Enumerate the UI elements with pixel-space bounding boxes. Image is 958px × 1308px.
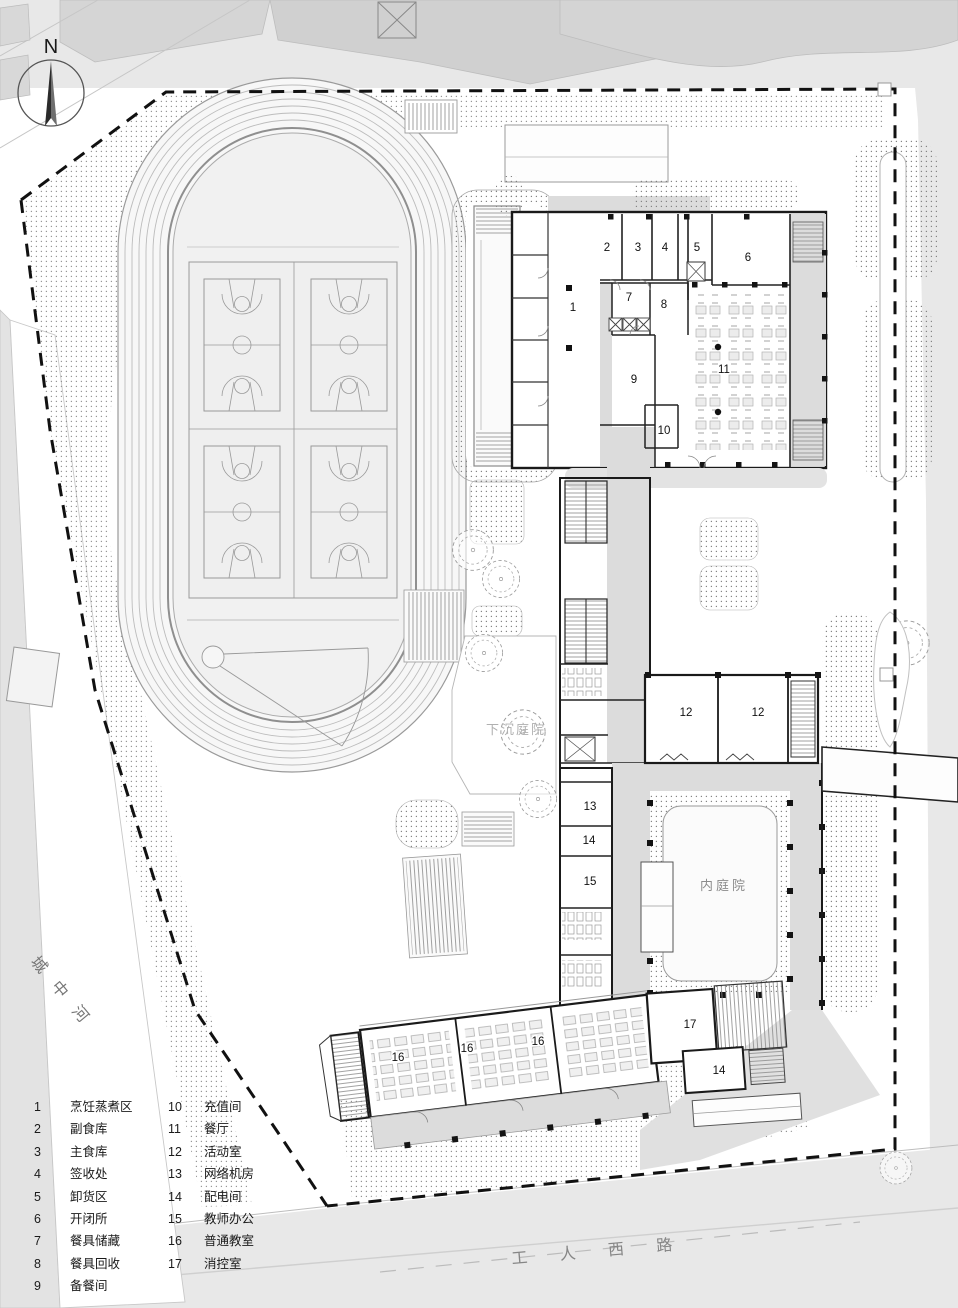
- room-label-3: 3: [635, 242, 641, 254]
- legend-item: 16普通教室: [168, 1230, 254, 1252]
- legend-num: 7: [34, 1230, 70, 1252]
- legend-label: 备餐间: [70, 1275, 108, 1297]
- legend-label: 充值间: [204, 1096, 242, 1118]
- room-label-16: 16: [532, 1036, 545, 1048]
- legend-num: 6: [34, 1208, 70, 1230]
- legend-num: 14: [168, 1186, 204, 1208]
- legend-label: 餐厅: [204, 1118, 229, 1140]
- legend-item: 6开闭所: [34, 1208, 133, 1230]
- legend-item: 17消控室: [168, 1253, 254, 1275]
- tree-icon: [482, 560, 519, 597]
- legend-label: 主食库: [70, 1141, 108, 1163]
- legend-num: 5: [34, 1186, 70, 1208]
- room-label-2: 2: [604, 242, 610, 254]
- legend-item: 11餐厅: [168, 1118, 254, 1140]
- room-label-6: 6: [745, 252, 751, 264]
- room-label-5: 5: [694, 242, 700, 254]
- room-label-1: 1: [570, 302, 576, 314]
- legend-label: 消控室: [204, 1253, 242, 1275]
- room-label-4: 4: [662, 242, 669, 254]
- legend-item: 12活动室: [168, 1141, 254, 1163]
- legend-label: 教师办公: [204, 1208, 254, 1230]
- legend-item: 13网络机房: [168, 1163, 254, 1185]
- legend-item: 8餐具回收: [34, 1253, 133, 1275]
- legend-num: 13: [168, 1163, 204, 1185]
- legend-num: 16: [168, 1230, 204, 1252]
- legend-item: 2副食库: [34, 1118, 133, 1140]
- legend-label: 普通教室: [204, 1230, 254, 1252]
- tree-icon: [880, 1152, 912, 1184]
- site-plan-drawing: N 1 2 3 4 5 6 7 8 9 10 11 12 12 13 14 15…: [0, 0, 958, 1308]
- legend-item: 9备餐间: [34, 1275, 133, 1297]
- sunken-courtyard: [452, 530, 557, 818]
- room-label-15: 15: [584, 876, 597, 888]
- legend-item: 14配电间: [168, 1186, 254, 1208]
- inner-courtyard-label: 内庭院: [700, 878, 748, 893]
- room-label-12: 12: [752, 707, 765, 719]
- legend-num: 11: [168, 1118, 204, 1140]
- legend-num: 1: [34, 1096, 70, 1118]
- room-label-10: 10: [658, 425, 671, 437]
- legend-label: 开闭所: [70, 1208, 108, 1230]
- room-label-7: 7: [626, 292, 632, 304]
- legend-num: 8: [34, 1253, 70, 1275]
- legend-label: 副食库: [70, 1118, 108, 1140]
- room-label-13: 13: [584, 801, 597, 813]
- legend-item: 3主食库: [34, 1141, 133, 1163]
- room-label-11: 11: [718, 364, 730, 376]
- legend-item: 4签收处: [34, 1163, 133, 1185]
- legend-label: 烹饪蒸煮区: [70, 1096, 133, 1118]
- room-label-16: 16: [461, 1043, 474, 1055]
- legend-item: 1烹饪蒸煮区: [34, 1096, 133, 1118]
- north-label: N: [44, 36, 58, 58]
- legend-label: 活动室: [204, 1141, 242, 1163]
- legend-label: 餐具储藏: [70, 1230, 120, 1252]
- room-label-14: 14: [713, 1065, 726, 1077]
- legend-num: 12: [168, 1141, 204, 1163]
- legend-label: 卸货区: [70, 1186, 108, 1208]
- legend-label: 网络机房: [204, 1163, 254, 1185]
- legend-item: 15教师办公: [168, 1208, 254, 1230]
- legend-column-1: 1烹饪蒸煮区 2副食库 3主食库 4签收处 5卸货区 6开闭所 7餐具储藏 8餐…: [34, 1096, 133, 1298]
- legend-num: 2: [34, 1118, 70, 1140]
- tree-icon: [453, 530, 494, 571]
- legend-num: 4: [34, 1163, 70, 1185]
- tree-icon: [519, 780, 556, 817]
- room-label-16: 16: [392, 1052, 405, 1064]
- upper-block: [512, 212, 828, 488]
- legend-num: 17: [168, 1253, 204, 1275]
- legend-label: 签收处: [70, 1163, 108, 1185]
- legend-item: 5卸货区: [34, 1186, 133, 1208]
- legend-label: 餐具回收: [70, 1253, 120, 1275]
- room-label-17: 17: [684, 1019, 697, 1031]
- tree-icon: [465, 634, 502, 671]
- sunken-courtyard-label: 下沉庭院: [486, 722, 546, 737]
- room-label-12: 12: [680, 707, 693, 719]
- basketball-courts: [187, 247, 399, 598]
- room-label-8: 8: [661, 299, 667, 311]
- legend-num: 9: [34, 1275, 70, 1297]
- room-label-9: 9: [631, 374, 637, 386]
- room-label-14: 14: [583, 835, 596, 847]
- legend-num: 15: [168, 1208, 204, 1230]
- legend-item: 10充值间: [168, 1096, 254, 1118]
- connector-wing: [560, 466, 650, 768]
- legend-label: 配电间: [204, 1186, 242, 1208]
- legend-column-2: 10充值间 11餐厅 12活动室 13网络机房 14配电间 15教师办公 16普…: [168, 1096, 254, 1275]
- legend-num: 3: [34, 1141, 70, 1163]
- riverbank-building: [6, 647, 59, 707]
- legend-num: 10: [168, 1096, 204, 1118]
- legend-item: 7餐具储藏: [34, 1230, 133, 1252]
